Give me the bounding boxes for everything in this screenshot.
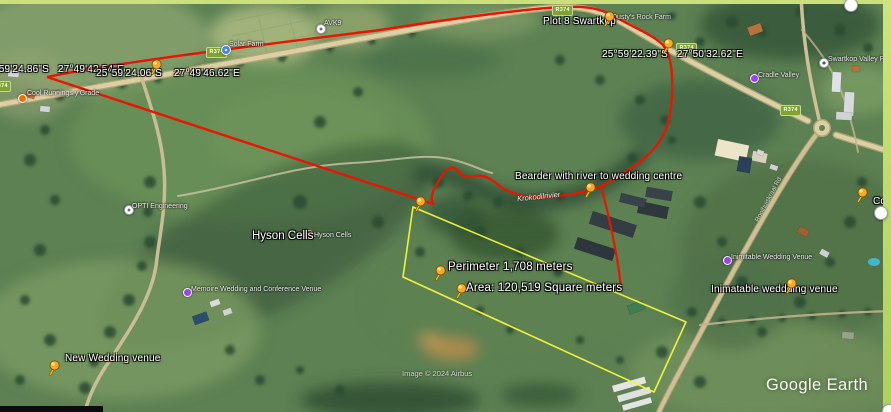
hyson-cells-area-label: Hyson Cells <box>252 230 313 242</box>
coords-west-pushpin-icon[interactable] <box>148 59 164 75</box>
cool-runnings-orange-circle-icon[interactable] <box>18 94 27 103</box>
map-stage[interactable]: Krokodilrivier Rooihuiskraal Rd Hyson Ce… <box>0 0 891 412</box>
perimeter-pushpin-icon[interactable] <box>432 265 448 281</box>
bearder-river-label[interactable]: Bearder with river to wedding centre <box>515 171 682 182</box>
road-badge-1: R374 <box>552 5 573 16</box>
bearder-river-pushpin-icon[interactable] <box>582 182 598 198</box>
avk-label[interactable]: AVK9 <box>324 20 341 27</box>
road-badge-3: R374 <box>780 105 801 116</box>
area-label[interactable]: Area: 120,519 Square meters <box>466 282 622 294</box>
resize-handle-right[interactable] <box>874 206 888 220</box>
co-right-edge-pushpin-icon[interactable] <box>854 187 870 203</box>
inimatable-venue-label[interactable]: Inimatable weddding venue <box>711 284 838 295</box>
swartkop-valley-prim-label[interactable]: Swartkop Valley Prim <box>828 56 891 63</box>
coords-east-pushpin-icon[interactable] <box>660 38 676 54</box>
opti-engineering-label[interactable]: OPTI Engineering <box>132 203 188 210</box>
cradle-valley-label[interactable]: Cradle Valley <box>758 72 799 79</box>
cool-runnings-label[interactable]: Cool Runnings y'Grade <box>27 90 99 97</box>
plot-8-swartkop-pushpin-icon[interactable] <box>601 11 617 27</box>
resize-handle-bottom-right[interactable] <box>882 404 891 412</box>
perimeter-label[interactable]: Perimeter 1,708 meters <box>448 261 573 273</box>
hyson-cells-poi-label[interactable]: Hyson Cells <box>314 232 351 239</box>
bottom-black-strip <box>0 406 103 412</box>
polygon-corner-pushpin-icon[interactable] <box>412 196 428 212</box>
inimatable-venue-pushpin-icon[interactable] <box>783 278 799 294</box>
inimitable-venue-poi-label[interactable]: Inimitable Wedding Venue <box>731 254 812 261</box>
new-wedding-venue-pushpin-icon[interactable] <box>46 360 62 376</box>
road-badge-4: R374 <box>0 81 11 92</box>
area-pushpin-icon[interactable] <box>453 283 469 299</box>
imagery-attribution: Image © 2024 Airbus <box>402 369 472 378</box>
coords-west-label[interactable]: 25°59'24.06"S 27°49'46.62"E <box>96 68 240 79</box>
google-earth-watermark: Google Earth <box>766 376 868 395</box>
solar-farm-label[interactable]: Solar Farm <box>229 41 264 48</box>
rock-farm-label[interactable]: Dusty's Rock Farm <box>612 14 671 21</box>
selection-border-top <box>0 0 891 4</box>
memoire-venue-label[interactable]: Memoire Wedding and Conference Venue <box>191 286 321 293</box>
new-wedding-venue-label[interactable]: New Wedding venue <box>65 353 161 364</box>
